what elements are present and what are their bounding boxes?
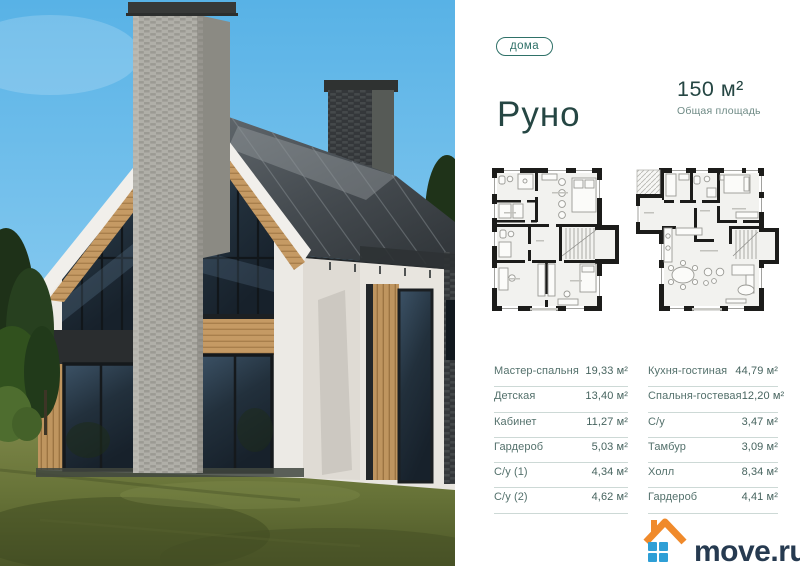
total-area: 150 м² Общая площадь	[677, 79, 761, 117]
room-area-value: 11,27 м²	[586, 416, 628, 428]
room-name: Гардероб	[494, 441, 543, 453]
info-panel: дома Руно 150 м² Общая площадь	[455, 0, 800, 566]
room-name: Гардероб	[648, 491, 697, 503]
room-name: С/у	[648, 416, 665, 428]
room-row: Кабинет 11,27 м²	[494, 413, 628, 438]
move-ru-logo-text: move.ru	[694, 538, 800, 566]
room-row: Гардероб 5,03 м²	[494, 438, 628, 463]
floor-plan-second-floor	[492, 168, 622, 311]
room-list-second-floor: Мастер-спальня 19,33 м² Детская 13,40 м²…	[494, 362, 628, 514]
room-row: Кухня-гостиная 44,79 м²	[648, 362, 778, 387]
room-name: Кабинет	[494, 416, 537, 428]
ground-window-left	[64, 364, 138, 470]
room-name: С/у (2)	[494, 491, 528, 503]
room-area-value: 19,33 м²	[585, 365, 628, 377]
room-row: С/у (2) 4,62 м²	[494, 488, 628, 513]
room-row: Гардероб 4,41 м²	[648, 488, 778, 513]
right-facade	[303, 246, 455, 490]
house-photo	[0, 0, 455, 566]
room-name: Детская	[494, 390, 535, 402]
room-row: Спальня-гостевая 12,20 м²	[648, 387, 778, 412]
room-area-value: 12,20 м²	[742, 390, 785, 402]
room-area-value: 13,40 м²	[585, 390, 628, 402]
room-area-value: 4,41 м²	[742, 491, 778, 503]
plan2-entry-porch	[637, 170, 660, 195]
room-area-value: 4,62 м²	[592, 491, 628, 503]
room-list-first-floor: Кухня-гостиная 44,79 м² Спальня-гостевая…	[648, 362, 778, 514]
room-area-lists: Мастер-спальня 19,33 м² Детская 13,40 м²…	[494, 362, 778, 514]
room-name: Мастер-спальня	[494, 365, 579, 377]
room-area-value: 3,09 м²	[742, 441, 778, 453]
room-row: С/у (1) 4,34 м²	[494, 463, 628, 488]
room-name: Холл	[648, 466, 674, 478]
page-title: Руно	[497, 97, 581, 132]
total-area-value: 150 м²	[677, 79, 761, 101]
move-ru-logo[interactable]: move.ru	[643, 515, 800, 566]
house-render-illustration	[0, 0, 455, 566]
room-area-value: 5,03 м²	[592, 441, 628, 453]
house-roof-with-window-icon	[643, 515, 687, 566]
floor-plan-first-floor	[636, 168, 784, 311]
room-area-value: 8,34 м²	[742, 466, 778, 478]
room-name: С/у (1)	[494, 466, 528, 478]
room-name: Спальня-гостевая	[648, 390, 742, 402]
room-name: Кухня-гостиная	[648, 365, 727, 377]
room-name: Тамбур	[648, 441, 686, 453]
room-area-value: 3,47 м²	[742, 416, 778, 428]
listing-page: дома Руно 150 м² Общая площадь	[0, 0, 800, 566]
room-area-value: 4,34 м²	[592, 466, 628, 478]
room-row: С/у 3,47 м²	[648, 413, 778, 438]
floor-plans	[492, 168, 786, 311]
room-row: Тамбур 3,09 м²	[648, 438, 778, 463]
room-row: Холл 8,34 м²	[648, 463, 778, 488]
ground-window-right	[198, 355, 273, 472]
room-area-value: 44,79 м²	[735, 365, 778, 377]
total-area-label: Общая площадь	[677, 105, 761, 117]
room-row: Детская 13,40 м²	[494, 387, 628, 412]
room-row: Мастер-спальня 19,33 м²	[494, 362, 628, 387]
category-badge[interactable]: дома	[496, 37, 553, 56]
